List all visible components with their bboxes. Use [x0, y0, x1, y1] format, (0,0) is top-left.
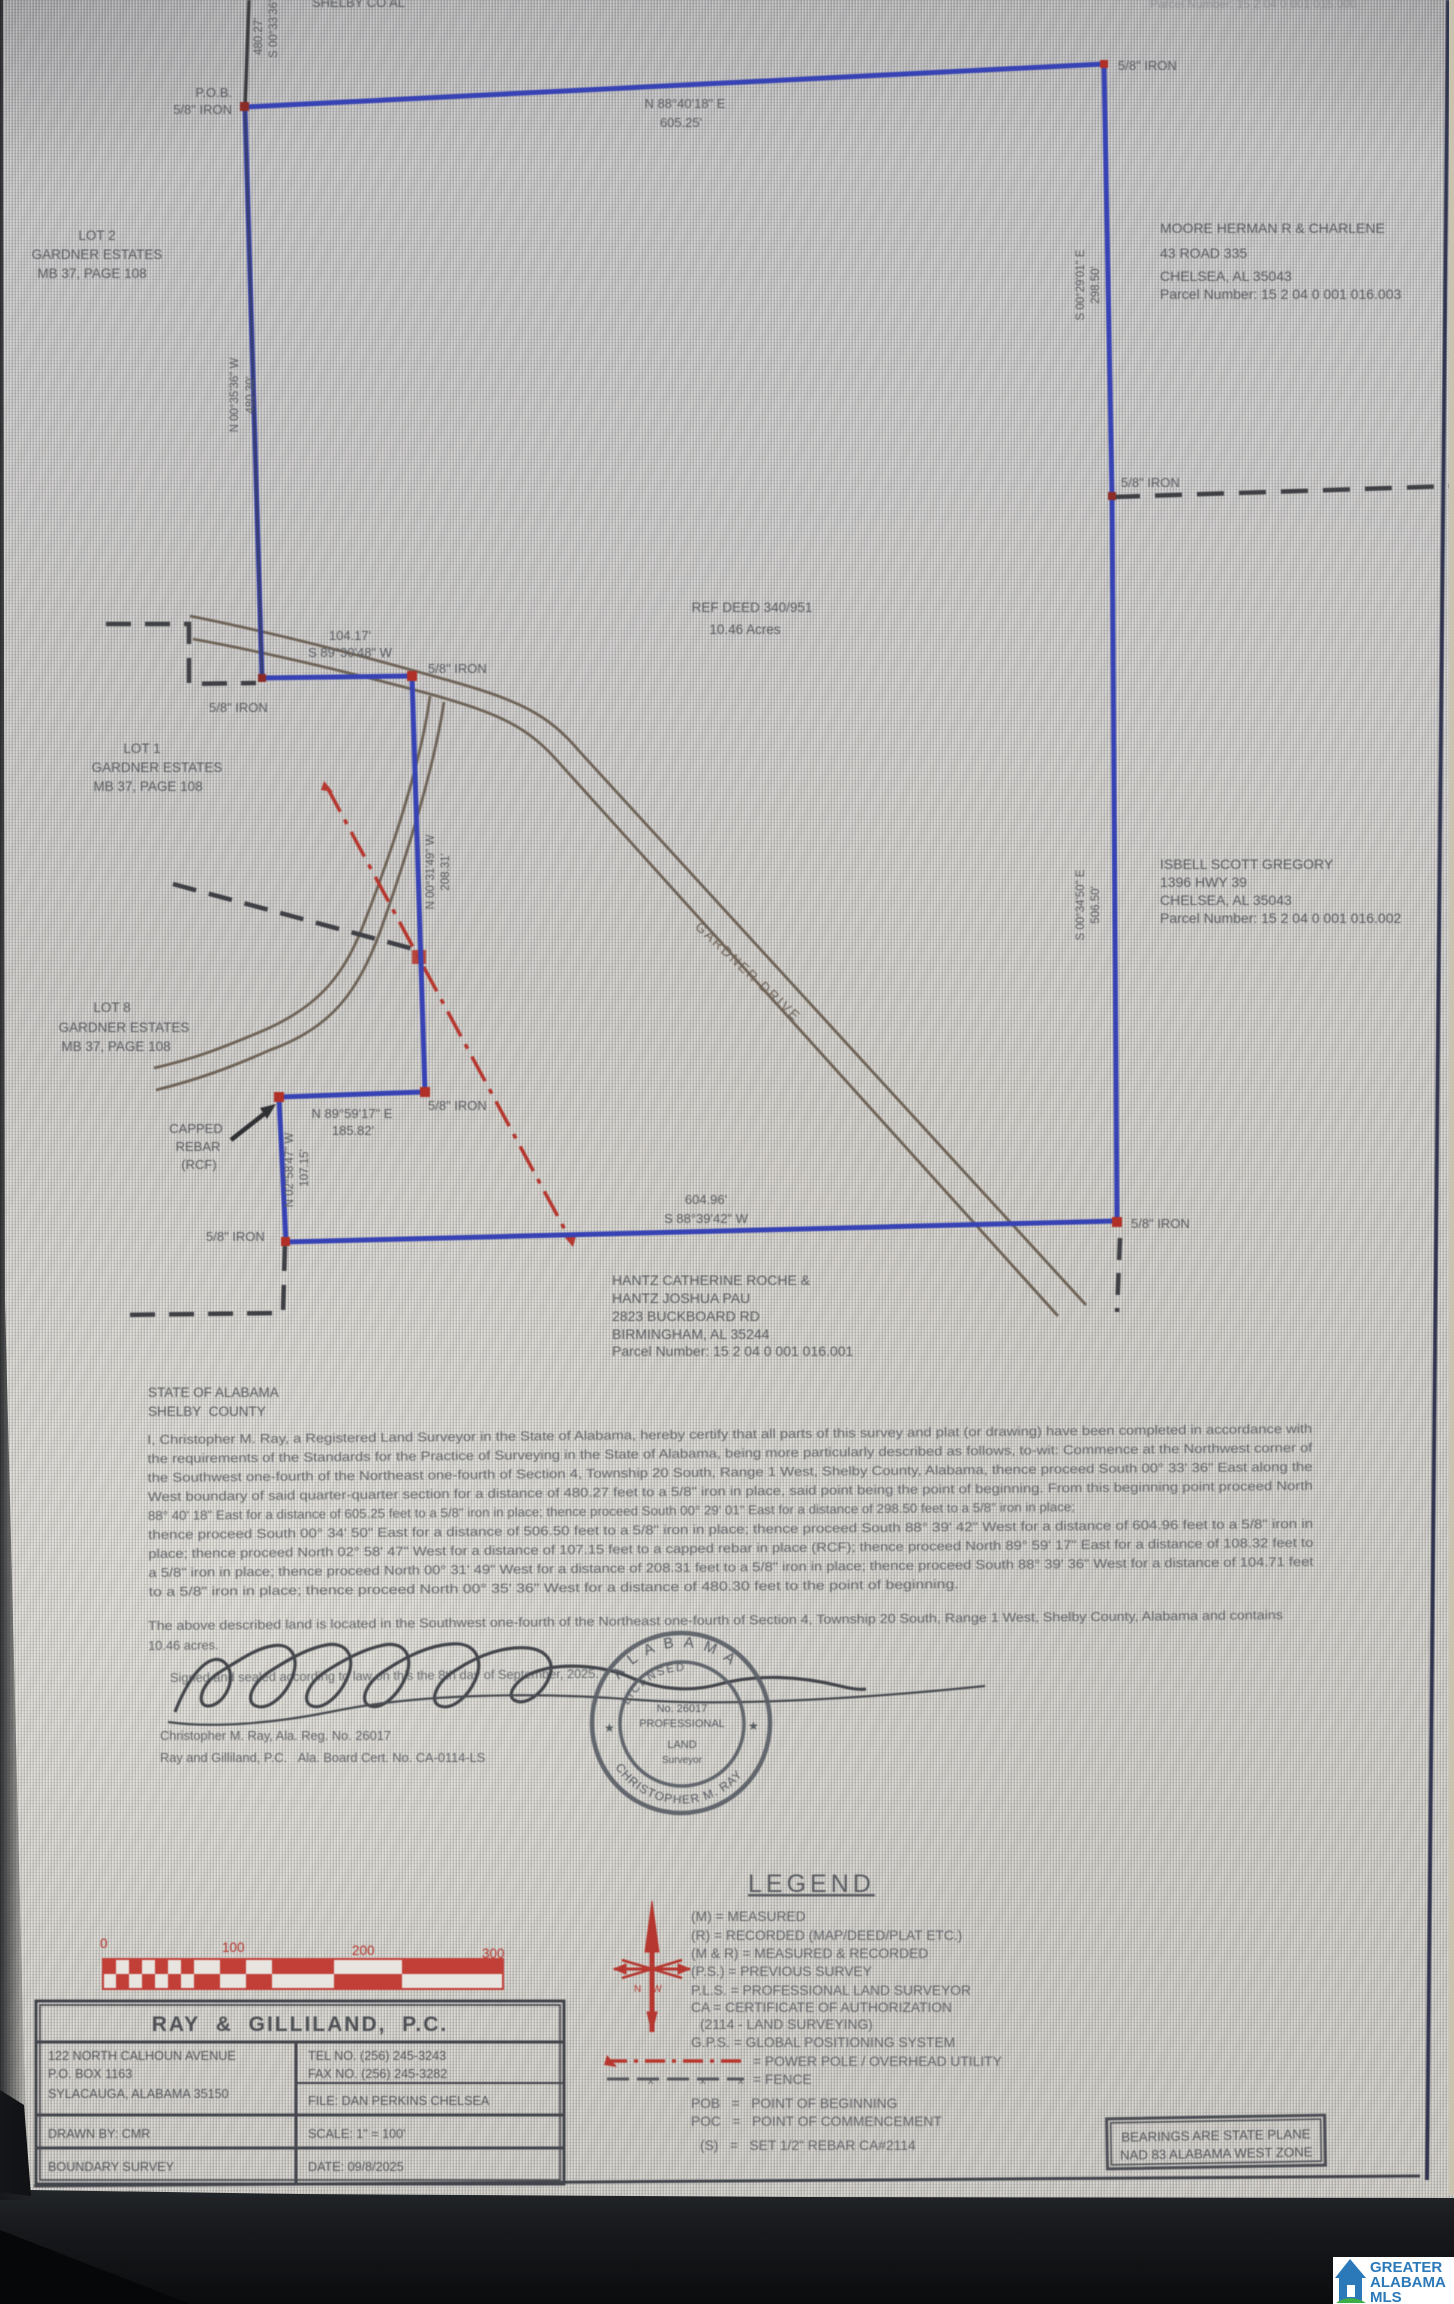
svg-text:480.27': 480.27'	[253, 18, 265, 55]
svg-text:2823 BUCKBOARD RD: 2823 BUCKBOARD RD	[612, 1308, 760, 1324]
svg-text:604.96': 604.96'	[685, 1192, 727, 1207]
svg-text:Ray and Gilliland, P.C. Ala.: Ray and Gilliland, P.C. Ala. Board Cert.…	[160, 1750, 485, 1765]
svg-text:MB 37, PAGE 108: MB 37, PAGE 108	[93, 779, 202, 794]
svg-text:FAX NO. (256) 245-3282: FAX NO. (256) 245-3282	[308, 2067, 447, 2081]
svg-text:10.46 Acres: 10.46 Acres	[709, 622, 781, 637]
svg-text:506.50': 506.50'	[1090, 886, 1102, 923]
svg-text:S 00°33'36" E: S 00°33'36" E	[268, 0, 280, 58]
svg-text:N 00°35'36" W: N 00°35'36" W	[229, 357, 241, 432]
svg-text:(P.S.) = PREVIOUS SURVEY: (P.S.) = PREVIOUS SURVEY	[691, 1964, 872, 1979]
svg-text:Parcel Number: 15 2 04 0 001 0: Parcel Number: 15 2 04 0 001 016.003	[1160, 286, 1401, 302]
svg-text:Parcel Number: 15 2 04 0 001 0: Parcel Number: 15 2 04 0 001 015.000	[1150, 0, 1357, 11]
svg-text:MOORE HERMAN R & CHARLENE: MOORE HERMAN R & CHARLENE	[1160, 220, 1385, 236]
svg-text:(M & R) = MEASURED & RECORDED: (M & R) = MEASURED & RECORDED	[691, 1946, 928, 1961]
svg-text:BIRMINGHAM, AL 35244: BIRMINGHAM, AL 35244	[612, 1326, 770, 1342]
svg-text:5/8" IRON: 5/8" IRON	[206, 1229, 265, 1244]
svg-text:CHELSEA, AL 35043: CHELSEA, AL 35043	[1160, 268, 1292, 284]
svg-text:1396 HWY 39: 1396 HWY 39	[1160, 874, 1247, 890]
svg-text:G.P.S. = GLOBAL POSITIONING SY: G.P.S. = GLOBAL POSITIONING SYSTEM	[691, 2035, 955, 2050]
svg-text:5/8" IRON: 5/8" IRON	[1131, 1216, 1190, 1231]
svg-text:(2114 - LAND SURVEYING): (2114 - LAND SURVEYING)	[700, 2017, 873, 2032]
svg-text:RAY & GILLILAND, P.C.: RAY & GILLILAND, P.C.	[152, 2013, 449, 2036]
svg-text:5/8" IRON: 5/8" IRON	[428, 661, 487, 676]
svg-text:200: 200	[352, 1943, 375, 1958]
svg-text:Signed and sealed according to: Signed and sealed according to law on th…	[170, 1666, 599, 1685]
svg-text:HANTZ CATHERINE ROCHE &: HANTZ CATHERINE ROCHE &	[612, 1272, 811, 1288]
svg-text:5/8" IRON: 5/8" IRON	[209, 700, 268, 715]
svg-text:SHELBY COUNTY: SHELBY COUNTY	[148, 1404, 266, 1419]
svg-text:P.L.S. = PROFESSIONAL LAND SUR: P.L.S. = PROFESSIONAL LAND SURVEYOR	[691, 1983, 971, 1998]
svg-text:★: ★	[748, 1719, 759, 1733]
svg-text:LAND: LAND	[667, 1739, 696, 1751]
svg-text:TEL NO. (256) 245-3243: TEL NO. (256) 245-3243	[308, 2049, 446, 2063]
svg-text:Parcel Number: 15 2 04 0 001 0: Parcel Number: 15 2 04 0 001 016.001	[612, 1343, 853, 1359]
svg-text:S 88°39'42" W: S 88°39'42" W	[664, 1211, 749, 1226]
svg-text:107.15': 107.15'	[299, 1149, 311, 1186]
svg-text:LEGEND: LEGEND	[748, 1870, 875, 1898]
svg-text:= POWER POLE / OVERHEAD UTILIT: = POWER POLE / OVERHEAD UTILITY	[753, 2054, 1002, 2069]
svg-text:Christopher M. Ray, Ala. Reg.: Christopher M. Ray, Ala. Reg. No. 26017	[160, 1728, 391, 1743]
svg-text:N 88°40'18" E: N 88°40'18" E	[645, 96, 726, 111]
svg-text:N W: N W	[634, 1984, 662, 1995]
svg-text:P.O.B.: P.O.B.	[195, 85, 232, 100]
svg-text:S 00°29'01" E: S 00°29'01" E	[1075, 249, 1087, 320]
svg-text:POC = POINT OF COMMENCEMEN: POC = POINT OF COMMENCEMENT	[691, 2114, 942, 2129]
svg-text:LOT 1: LOT 1	[123, 741, 160, 756]
svg-text:LOT 2: LOT 2	[78, 228, 115, 243]
svg-text:N 89°59'17" E: N 89°59'17" E	[312, 1106, 393, 1121]
svg-text:Parcel Number: 15 2 04 0 001 0: Parcel Number: 15 2 04 0 001 016.002	[1160, 910, 1401, 926]
svg-text:STATE OF ALABAMA: STATE OF ALABAMA	[148, 1385, 279, 1400]
svg-text:10.46 acres.: 10.46 acres.	[148, 1637, 219, 1653]
svg-text:HANTZ JOSHUA PAU: HANTZ JOSHUA PAU	[612, 1290, 750, 1306]
svg-text:= FENCE: = FENCE	[753, 2072, 812, 2087]
svg-text:480.30': 480.30'	[245, 376, 257, 413]
svg-text:GARDNER ESTATES: GARDNER ESTATES	[59, 1020, 190, 1035]
svg-text:REF DEED 340/951: REF DEED 340/951	[692, 600, 813, 615]
svg-text:CHELSEA, AL 35043: CHELSEA, AL 35043	[1160, 892, 1292, 908]
svg-text:N 00°31'49" W: N 00°31'49" W	[425, 834, 437, 909]
svg-text:5/8" IRON: 5/8" IRON	[1118, 58, 1177, 73]
svg-text:SHELBY CO AL: SHELBY CO AL	[312, 0, 405, 10]
svg-text:POB = POINT OF BEGINNING: POB = POINT OF BEGINNING	[691, 2096, 897, 2111]
svg-text:104.17': 104.17'	[329, 628, 371, 643]
svg-text:to a 5/8" iron in place; thenc: to a 5/8" iron in place; thence proceed …	[149, 1576, 959, 1599]
svg-text:298.50': 298.50'	[1090, 266, 1102, 303]
svg-text:MB 37, PAGE 108: MB 37, PAGE 108	[37, 266, 146, 281]
svg-text:208.31': 208.31'	[440, 853, 452, 890]
svg-text:P.O. BOX 1163: P.O. BOX 1163	[48, 2067, 132, 2081]
svg-text:x: x	[648, 2075, 654, 2087]
svg-text:The above described land is lo: The above described land is located in t…	[148, 1607, 1283, 1633]
svg-text:S 89°30'48" W: S 89°30'48" W	[308, 645, 393, 660]
svg-text:PROFESSIONAL: PROFESSIONAL	[639, 1718, 725, 1730]
svg-text:100: 100	[222, 1940, 245, 1955]
svg-text:CA = CERTIFICATE OF AUTHORIZAT: CA = CERTIFICATE OF AUTHORIZATION	[691, 2000, 952, 2015]
svg-text:N 02°58'47" W: N 02°58'47" W	[284, 1132, 296, 1207]
svg-text:GARDNER ESTATES: GARDNER ESTATES	[92, 760, 223, 775]
svg-text:★: ★	[604, 1721, 615, 1735]
svg-text:Surveyor: Surveyor	[662, 1755, 703, 1766]
svg-text:185.82': 185.82'	[332, 1123, 374, 1138]
svg-text:x: x	[738, 2075, 744, 2087]
svg-text:SYLACAUGA, ALABAMA 35150: SYLACAUGA, ALABAMA 35150	[48, 2087, 229, 2101]
svg-text:SCALE: 1" = 100': SCALE: 1" = 100'	[308, 2127, 406, 2141]
svg-text:5/8" IRON: 5/8" IRON	[173, 102, 232, 117]
svg-text:LOT 8: LOT 8	[93, 1000, 130, 1015]
svg-text:(R) = RECORDED (MAP/DEED/PLAT: (R) = RECORDED (MAP/DEED/PLAT ETC.)	[691, 1928, 962, 1943]
svg-text:605.25': 605.25'	[660, 115, 702, 130]
svg-text:ISBELL SCOTT GREGORY: ISBELL SCOTT GREGORY	[1160, 856, 1334, 872]
svg-text:S 00°34'50" E: S 00°34'50" E	[1075, 869, 1087, 940]
svg-text:43 ROAD 335: 43 ROAD 335	[1160, 245, 1247, 261]
svg-text:(M) = MEASURED: (M) = MEASURED	[691, 1909, 806, 1924]
svg-text:REBAR: REBAR	[176, 1139, 221, 1154]
svg-text:5/8" IRON: 5/8" IRON	[428, 1098, 487, 1113]
svg-text:(RCF): (RCF)	[181, 1157, 216, 1172]
svg-text:CAPPED: CAPPED	[169, 1121, 222, 1136]
svg-text:MLS: MLS	[1370, 2289, 1402, 2304]
svg-text:122 NORTH CALHOUN AVENUE: 122 NORTH CALHOUN AVENUE	[48, 2049, 236, 2063]
svg-text:5/8" IRON: 5/8" IRON	[1121, 475, 1180, 490]
svg-text:No. 26017: No. 26017	[657, 1703, 708, 1715]
svg-text:GARDNER ESTATES: GARDNER ESTATES	[32, 247, 163, 262]
svg-text:0: 0	[100, 1936, 108, 1951]
svg-text:MB 37, PAGE 108: MB 37, PAGE 108	[61, 1039, 170, 1054]
svg-text:FILE: DAN PERKINS CHELSEA: FILE: DAN PERKINS CHELSEA	[308, 2094, 490, 2108]
svg-text:DRAWN BY: CMR: DRAWN BY: CMR	[48, 2127, 150, 2141]
svg-text:x: x	[700, 2075, 706, 2087]
